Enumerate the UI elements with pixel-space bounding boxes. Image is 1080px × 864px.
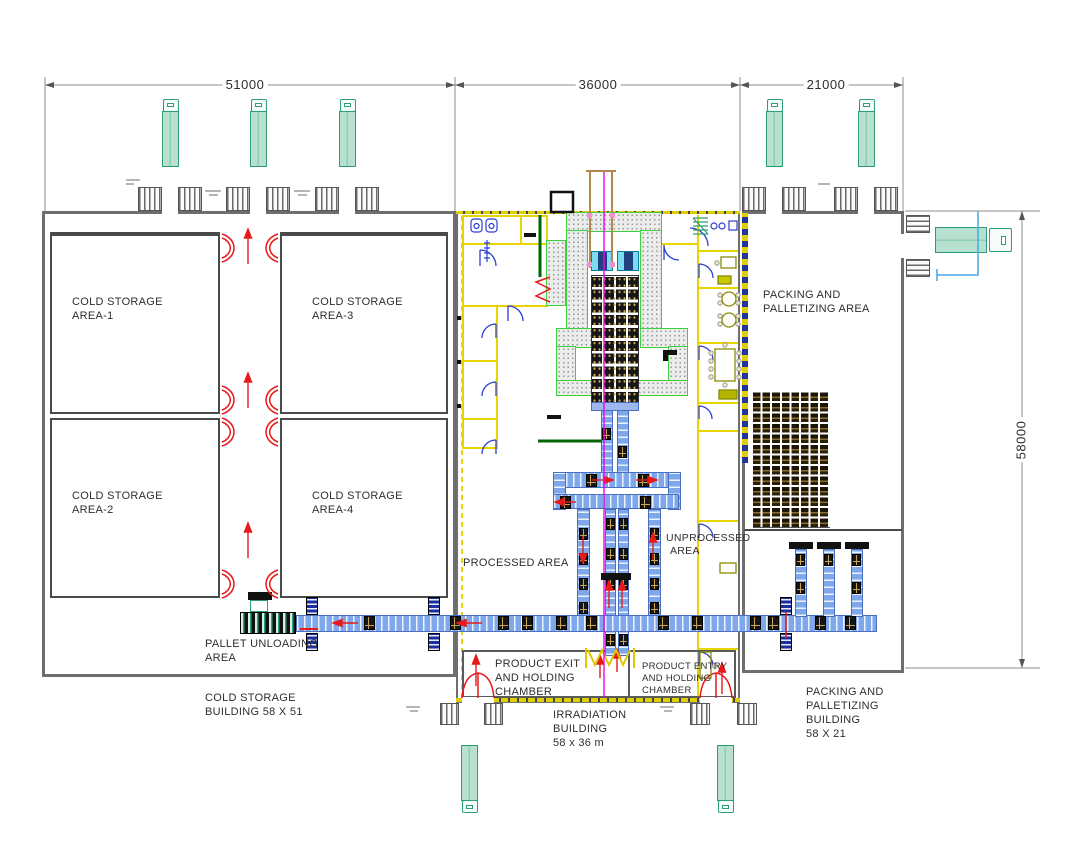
label-product-entry: PRODUCT ENTRYAND HOLDINGCHAMBER: [642, 661, 727, 697]
label-unprocessed-area: UNPROCESSEDAREA: [666, 532, 750, 559]
truck-path: [937, 211, 978, 281]
linework-overlay: [0, 0, 1080, 864]
dock-annotations: [126, 179, 830, 712]
dimension-arrows: [45, 82, 1025, 668]
dim-label-21000: 21000: [804, 77, 849, 94]
red-swing-doors: [222, 234, 732, 698]
yellow-curtain: [586, 648, 634, 668]
dimension-lines: [45, 77, 1040, 668]
label-cold-area-2: COLD STORAGEAREA-2: [72, 489, 163, 517]
label-irradiation-building: IRRADIATIONBUILDING58 x 36 m: [553, 708, 626, 750]
label-processed-area: PROCESSED AREA: [463, 556, 569, 570]
crane-box: [551, 192, 573, 212]
black-equipment-marks: [457, 233, 677, 580]
label-cold-area-3: COLD STORAGEAREA-3: [312, 295, 403, 323]
label-packing-building: PACKING ANDPALLETIZINGBUILDING58 X 21: [806, 685, 884, 741]
label-packing-area: PACKING ANDPALLETIZING AREA: [763, 288, 870, 316]
dim-label-36000: 36000: [576, 77, 621, 94]
label-cold-area-1: COLD STORAGEAREA-1: [72, 295, 163, 323]
label-product-exit: PRODUCT EXITAND HOLDINGCHAMBER: [495, 657, 580, 699]
blue-doors: [480, 228, 713, 666]
dim-label-51000: 51000: [223, 77, 268, 94]
office-furniture: [700, 257, 737, 678]
label-cold-area-4: COLD STORAGEAREA-4: [312, 489, 403, 517]
floor-plan: 51000 36000 21000 58000 COLD STORAGEAREA…: [0, 0, 1080, 864]
crane-rails: [586, 170, 616, 268]
label-cold-building: COLD STORAGEBUILDING 58 X 51: [205, 691, 303, 719]
label-pallet-unloading: PALLET UNLOADINGAREA: [205, 637, 318, 665]
green-walls: [538, 215, 602, 441]
dim-label-58000: 58000: [1014, 418, 1031, 463]
